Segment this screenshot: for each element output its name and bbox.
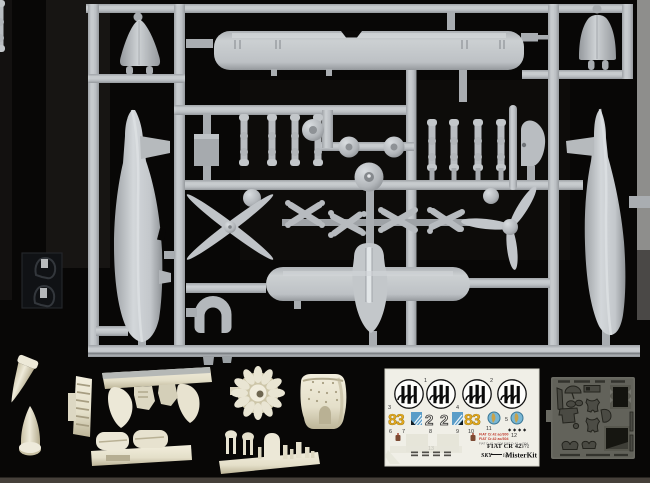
svg-text:83: 83 <box>464 412 481 429</box>
svg-text:1/72: 1/72 <box>521 444 530 449</box>
svg-text:2: 2 <box>490 378 493 384</box>
svg-text:8: 8 <box>429 429 432 435</box>
svg-text:83: 83 <box>388 412 405 429</box>
svg-text:2: 2 <box>440 412 448 429</box>
svg-text:1: 1 <box>424 378 427 384</box>
svg-text:FIAT CR 42: FIAT CR 42 <box>487 443 521 450</box>
svg-text:MisterKit: MisterKit <box>505 451 537 460</box>
svg-text:5: 5 <box>505 417 508 423</box>
svg-text:FIAT Cr.42 ac/300: FIAT Cr.42 ac/300 <box>479 433 509 437</box>
svg-text:12: 12 <box>511 433 517 439</box>
svg-text:4: 4 <box>456 405 459 411</box>
svg-text:3: 3 <box>388 405 391 411</box>
svg-text:SKY: SKY <box>481 453 493 459</box>
svg-text:FIAT Cr.42 ac/304: FIAT Cr.42 ac/304 <box>479 437 509 441</box>
svg-text:2: 2 <box>425 412 433 429</box>
svg-text:6: 6 <box>389 429 392 435</box>
svg-text:11: 11 <box>486 426 492 432</box>
svg-text:7: 7 <box>402 429 405 435</box>
